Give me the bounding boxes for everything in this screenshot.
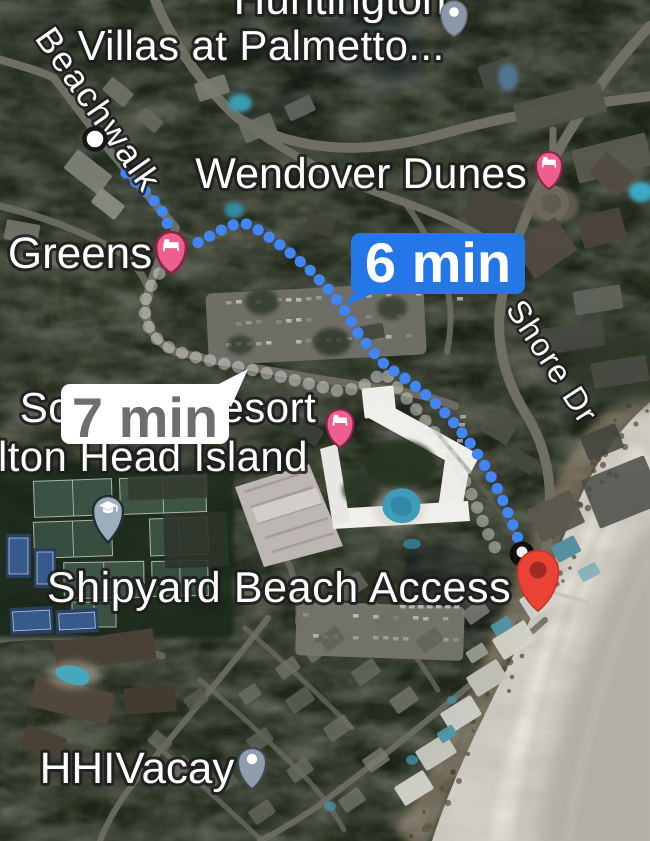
svg-text:HHIVacay: HHIVacay: [40, 744, 235, 793]
svg-text:Villas at Palmetto...: Villas at Palmetto...: [77, 22, 444, 69]
svg-text:Huntington: Huntington: [234, 0, 447, 24]
svg-text:7 min: 7 min: [72, 386, 218, 449]
svg-text:Greens: Greens: [8, 229, 152, 278]
svg-text:Wendover Dunes: Wendover Dunes: [195, 150, 526, 198]
svg-text:6 min: 6 min: [365, 231, 511, 294]
svg-text:Shipyard Beach Access: Shipyard Beach Access: [47, 564, 511, 612]
